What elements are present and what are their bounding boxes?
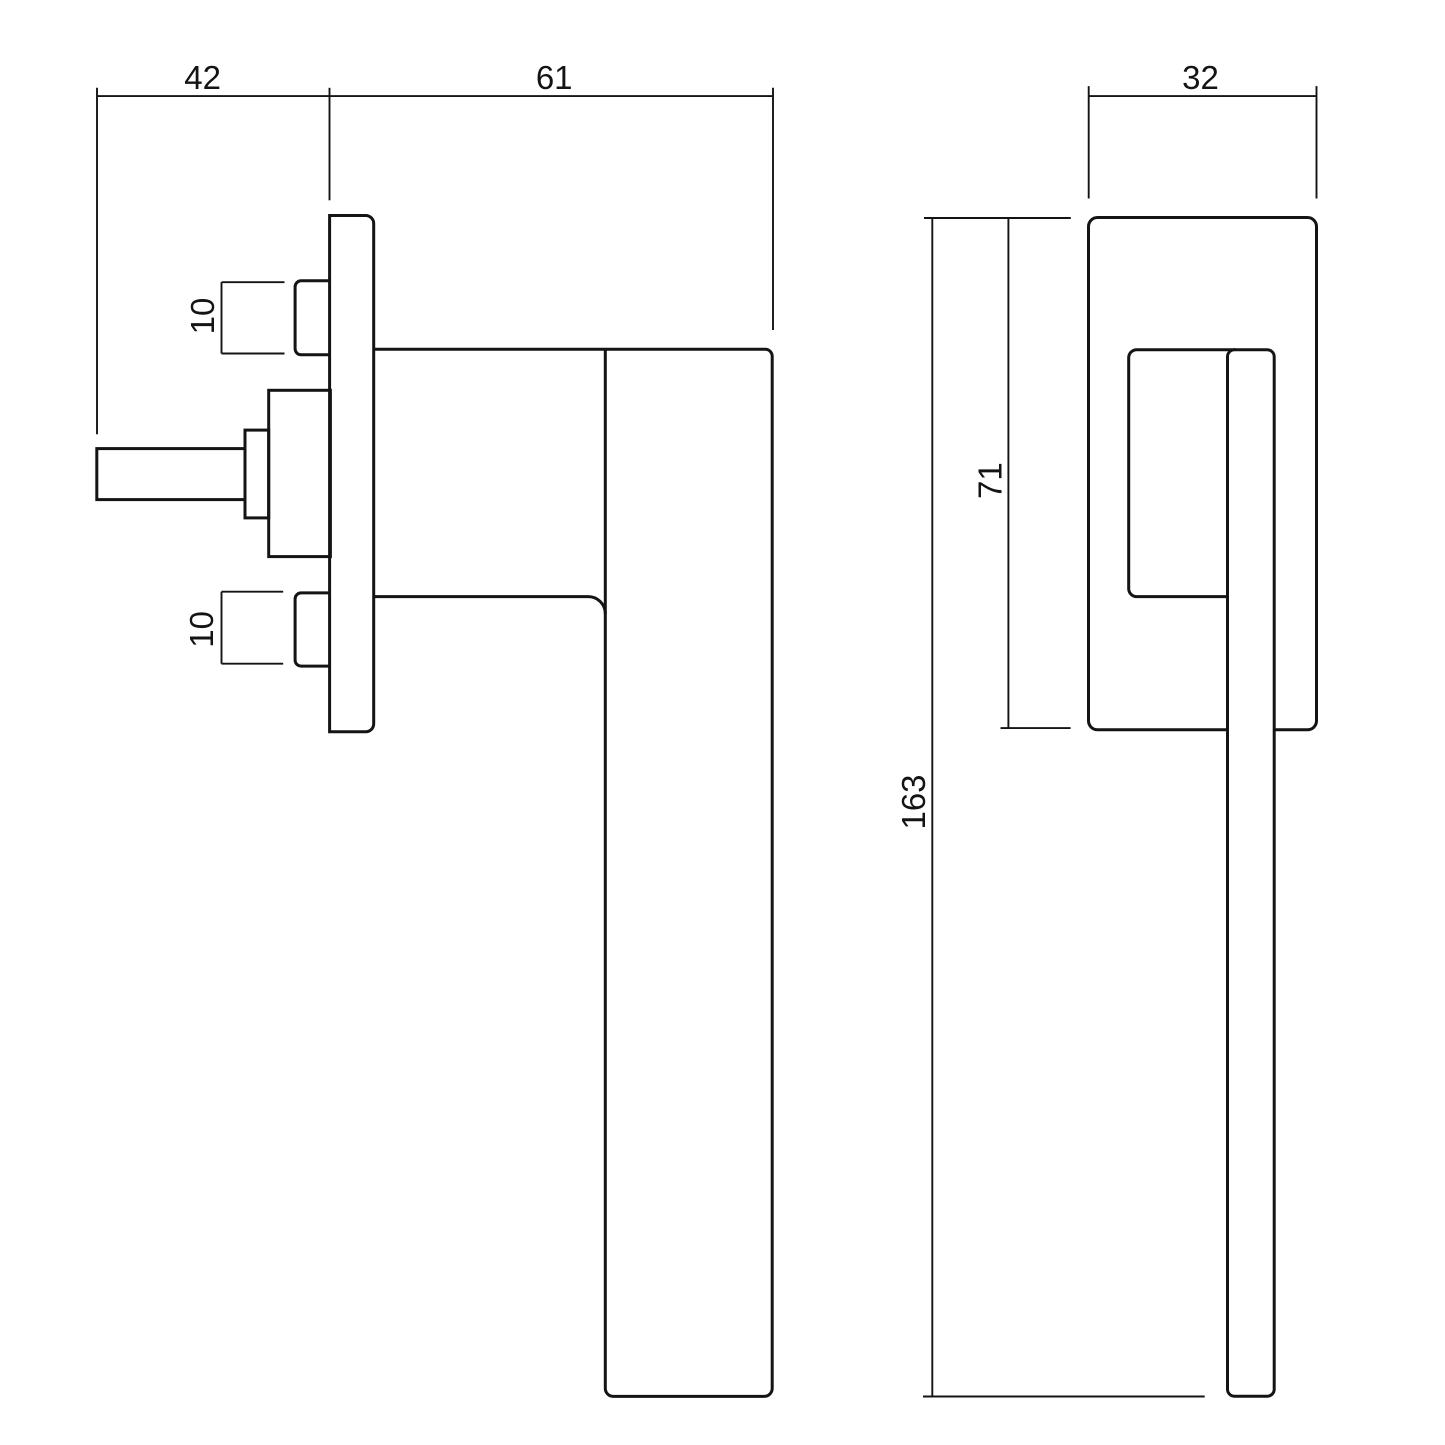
svg-text:163: 163 [895,774,932,829]
svg-text:42: 42 [184,59,221,96]
svg-text:10: 10 [183,611,220,648]
svg-text:61: 61 [536,59,573,96]
svg-text:32: 32 [1182,59,1219,96]
svg-text:10: 10 [184,298,221,335]
svg-text:71: 71 [971,462,1008,499]
